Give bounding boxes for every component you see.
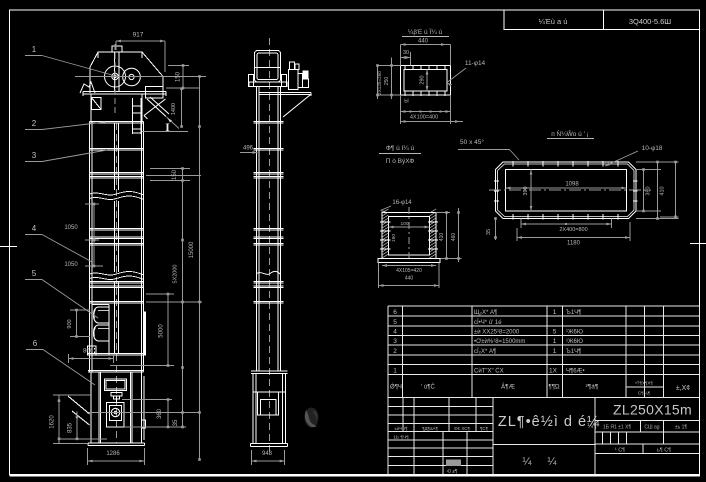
svg-text:290: 290 (420, 75, 426, 84)
svg-text:866: 866 (83, 349, 94, 355)
svg-text:100: 100 (400, 221, 408, 227)
svg-text:¶¶Ώ: ¶¶Ώ (549, 385, 560, 391)
svg-text:5000: 5000 (159, 324, 165, 338)
svg-text:¼: ¼ (547, 456, 557, 468)
svg-text:ZL250X15m: ZL250X15m (613, 402, 692, 418)
svg-text:2Х400=800: 2Х400=800 (559, 227, 587, 233)
svg-text:1400: 1400 (171, 103, 177, 115)
svg-text:Ч¶6Æ•: Ч¶6Æ• (566, 368, 585, 374)
svg-text:1: 1 (553, 309, 557, 316)
svg-text:1286: 1286 (106, 451, 120, 457)
svg-text:4: 4 (393, 328, 397, 335)
svg-text:5Х2000: 5Х2000 (173, 265, 179, 284)
svg-text:±ѝ ХХ25¹8=2000: ±ѝ ХХ25¹8=2000 (474, 329, 520, 335)
svg-text:Ъ1Ч¶: Ъ1Ч¶ (566, 310, 581, 316)
svg-text:496: 496 (243, 146, 254, 152)
svg-text:2: 2 (393, 348, 397, 355)
svg-text:1180: 1180 (567, 241, 581, 247)
svg-text:1Ь ¶Ч¶: 1Ь ¶Ч¶ (393, 435, 409, 441)
svg-text:2Х125=250: 2Х125=250 (377, 71, 382, 95)
svg-text:Ǻ¶Æ: Ǻ¶Æ (501, 382, 516, 391)
svg-text:150: 150 (172, 169, 178, 180)
svg-text:3: 3 (393, 338, 397, 345)
svg-text:¹Ж6Ю: ¹Ж6Ю (566, 329, 583, 335)
svg-text:Ы: Ы (404, 99, 409, 105)
svg-text:сΪ•Ч* ú′ 1é: сΪ•Ч* ú′ 1é (474, 319, 502, 326)
svg-text:35: 35 (173, 419, 179, 426)
svg-text:п Ǹ¼Ŵo ú ′ ¡: п Ǹ¼Ŵo ú ′ ¡ (551, 129, 589, 138)
svg-text:250: 250 (384, 77, 390, 86)
svg-text:Щ₂Х* А¶: Щ₂Х* А¶ (474, 310, 497, 316)
svg-text:¼Έù а ú: ¼Έù а ú (539, 17, 568, 26)
svg-text:Ǿ¶Ч: Ǿ¶Ч (390, 384, 402, 391)
svg-text:¹0 ƶ¶: ¹0 ƶ¶ (446, 469, 457, 475)
svg-text:¶С¶: ¶С¶ (480, 426, 489, 431)
svg-text:35: 35 (486, 229, 492, 235)
svg-text:50 x 45°: 50 x 45° (460, 138, 484, 146)
svg-text:I: I (165, 122, 170, 134)
svg-text:1: 1 (553, 338, 557, 345)
svg-text:С¶¼¶: С¶¼¶ (638, 391, 651, 397)
svg-text:•Т¶Х¶Х¶: •Т¶Х¶Х¶ (635, 381, 653, 386)
svg-text:1: 1 (393, 367, 397, 374)
svg-text:Ъ1Ч¶: Ъ1Ч¶ (566, 349, 581, 355)
svg-text:6: 6 (33, 339, 38, 348)
svg-text:¼βΈ ú Ϊ¼ ú: ¼βΈ ú Ϊ¼ ú (408, 28, 443, 36)
svg-text:3Q400-5.6Ш: 3Q400-5.6Ш (629, 17, 671, 26)
svg-text:4Х100=400: 4Х100=400 (410, 115, 438, 121)
svg-text:440: 440 (405, 276, 414, 282)
svg-text:±,Х¢: ±,Х¢ (676, 385, 690, 392)
svg-text:СШ ag: СШ ag (644, 425, 659, 431)
svg-text:Φ¢ ХС¶: Φ¢ ХС¶ (454, 426, 470, 431)
svg-text:4: 4 (32, 224, 37, 233)
svg-text:190: 190 (391, 234, 397, 242)
svg-text:1Х: 1Х (549, 367, 558, 374)
svg-text:СѝТ"Х" ĆХ: СѝТ"Х" ĆХ (474, 367, 504, 374)
svg-text:ZL¶•ê½ì d é¼: ZL¶•ê½ì d é¼ (498, 414, 600, 430)
svg-text:•Ơ±ѝ%¹8=1500mm: •Ơ±ѝ%¹8=1500mm (474, 339, 525, 345)
svg-text:10-φ18: 10-φ18 (642, 145, 663, 152)
svg-text:16-φ14: 16-φ14 (392, 200, 412, 206)
svg-text:3: 3 (32, 151, 37, 160)
svg-text:1: 1 (32, 45, 37, 54)
svg-text:390: 390 (646, 186, 652, 195)
svg-text:30: 30 (403, 50, 409, 56)
svg-text:1: 1 (553, 348, 557, 355)
svg-text:460: 460 (451, 233, 457, 242)
svg-text:6: 6 (393, 309, 397, 316)
svg-text:Π ò ΒýХФ: Π ò ΒýХФ (386, 158, 415, 165)
svg-text:¼: ¼ (522, 456, 532, 468)
svg-text:360: 360 (157, 408, 163, 419)
svg-text:440: 440 (418, 39, 429, 45)
svg-text:Ф¶ ú Ι¼ ú: Ф¶ ú Ι¼ ú (386, 145, 415, 152)
svg-text:¼¶: ¼¶ (587, 423, 597, 430)
svg-text:1050: 1050 (64, 262, 78, 268)
svg-text:15000: 15000 (189, 241, 195, 258)
svg-text:410: 410 (660, 186, 666, 195)
svg-text:4Х105=420: 4Х105=420 (396, 268, 422, 274)
svg-text:948: 948 (262, 451, 273, 457)
svg-text:²¶á¶: ²¶á¶ (586, 384, 599, 391)
svg-text:±ь 1¶: ±ь 1¶ (675, 425, 688, 431)
svg-text:390: 390 (523, 186, 529, 195)
svg-text:±ѝЧ(Ι¶: ±ѝЧ(Ι¶ (394, 426, 408, 431)
svg-text:1098: 1098 (565, 182, 579, 188)
svg-text:11-φ14: 11-φ14 (465, 60, 486, 67)
svg-text:5: 5 (393, 319, 397, 326)
svg-text:5: 5 (553, 328, 557, 335)
svg-text:¹Ж6Ю: ¹Ж6Ю (566, 339, 583, 345)
svg-text:1Б Я1 ±1 Х¶: 1Б Я1 ±1 Х¶ (603, 425, 631, 431)
svg-text:410: 410 (439, 233, 445, 242)
svg-text:′ ú¶Ĉ: ′ ú¶Ĉ (421, 384, 435, 391)
svg-text:1050: 1050 (64, 225, 78, 231)
svg-text:2: 2 (32, 119, 37, 128)
svg-text:1620: 1620 (50, 415, 56, 429)
svg-text:150: 150 (176, 71, 182, 82)
svg-text:¹ С¶: ¹ С¶ (615, 448, 625, 454)
svg-text:сΪ₂Х* А¶: сΪ₂Х* А¶ (474, 348, 496, 355)
svg-text:¶Д¶аА¶: ¶Д¶аА¶ (422, 426, 438, 431)
svg-text:900: 900 (67, 319, 73, 328)
svg-text:5: 5 (32, 269, 37, 278)
svg-text:835: 835 (68, 422, 74, 433)
svg-text:ь¶ С¶: ь¶ С¶ (657, 448, 671, 454)
svg-text:917: 917 (133, 32, 144, 39)
